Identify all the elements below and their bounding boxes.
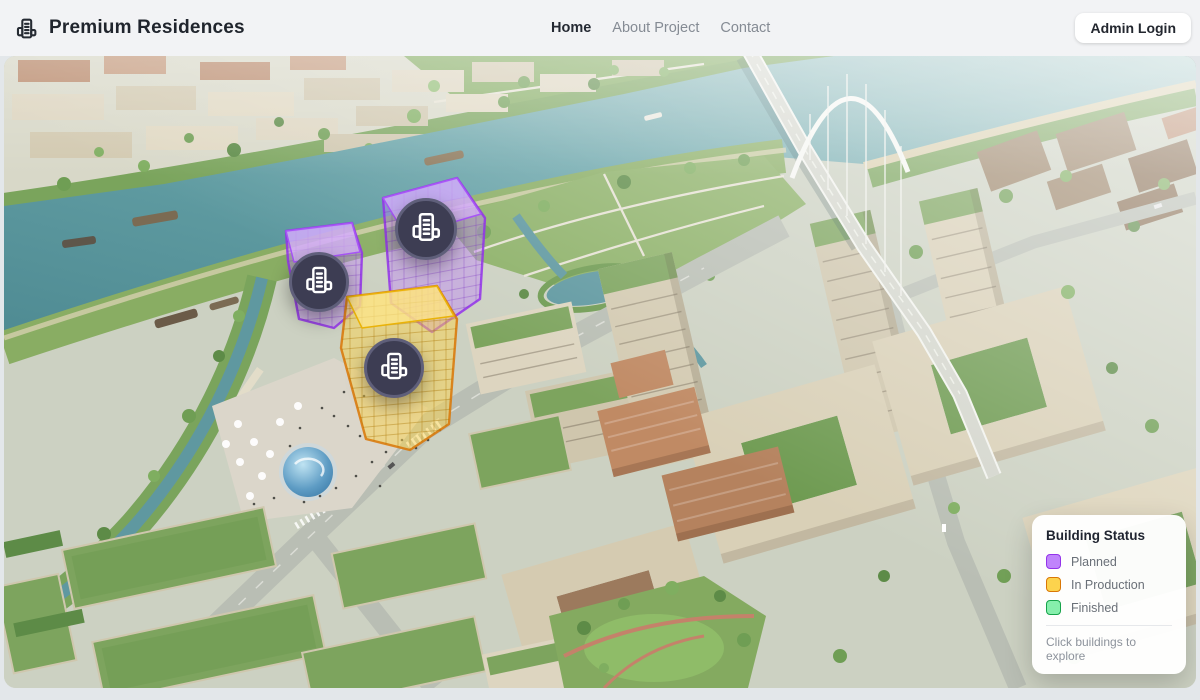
building-icon (377, 349, 411, 388)
brand: Premium Residences (14, 16, 245, 41)
legend-item-inproduction: In Production (1046, 577, 1172, 592)
admin-login-button[interactable]: Admin Login (1075, 13, 1191, 43)
building-marker-planned-2[interactable] (395, 198, 457, 260)
building-marker-planned-1[interactable] (289, 252, 349, 312)
hero-aerial-map: Building Status Planned In Production Fi… (4, 56, 1196, 688)
legend-title: Building Status (1046, 528, 1172, 543)
brand-title: Premium Residences (49, 17, 245, 39)
legend-label: Finished (1071, 601, 1118, 615)
legend-divider (1046, 625, 1172, 626)
top-navigation-bar: Premium Residences Home About Project Co… (0, 0, 1200, 56)
building-icon (408, 209, 444, 250)
legend-hint: Click buildings to explore (1046, 635, 1172, 663)
nav-link-about-project[interactable]: About Project (612, 20, 699, 36)
planned-swatch (1046, 554, 1061, 569)
legend-label: In Production (1071, 578, 1145, 592)
nav-link-home[interactable]: Home (551, 20, 591, 36)
nav-link-contact[interactable]: Contact (720, 20, 770, 36)
building-icon (302, 263, 336, 302)
building-status-legend: Building Status Planned In Production Fi… (1032, 515, 1186, 674)
main-nav: Home About Project Contact (551, 0, 770, 56)
aerial-render (4, 56, 1196, 688)
building-marker-inproduction[interactable] (364, 338, 424, 398)
finished-swatch (1046, 600, 1061, 615)
legend-item-finished: Finished (1046, 600, 1172, 615)
building-icon (14, 16, 39, 41)
legend-item-planned: Planned (1046, 554, 1172, 569)
legend-label: Planned (1071, 555, 1117, 569)
inproduction-swatch (1046, 577, 1061, 592)
